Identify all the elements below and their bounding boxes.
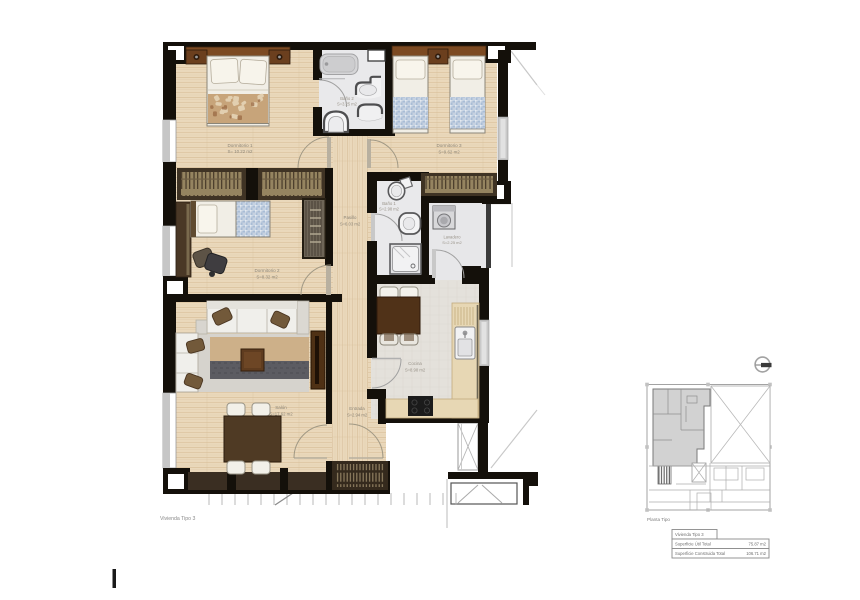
svg-text:S=8.98 m2: S=8.98 m2 [405,368,426,373]
svg-text:S=8.32 m2: S=8.32 m2 [256,275,278,280]
svg-text:S=2.25 m2: S=2.25 m2 [442,240,462,245]
svg-text:Salón: Salón [275,405,287,410]
svg-text:Cocina: Cocina [408,361,422,366]
svg-text:Lavadero: Lavadero [443,235,461,240]
svg-text:Baño 2: Baño 2 [340,96,354,101]
svg-text:S=9.62 m2: S=9.62 m2 [438,150,460,155]
svg-text:Dormitorio 2: Dormitorio 2 [254,268,279,273]
svg-text:Vivienda Tipo 3: Vivienda Tipo 3 [675,532,704,537]
svg-text:S=17.62 m2: S=17.62 m2 [269,412,293,417]
svg-text:75.87 m2: 75.87 m2 [749,542,767,547]
svg-text:S=6.03 m2: S=6.03 m2 [340,222,361,227]
svg-text:S=2.94 m2: S=2.94 m2 [347,413,368,418]
svg-text:Baño 1: Baño 1 [382,201,396,206]
svg-text:Dormitorio 3: Dormitorio 3 [436,143,461,148]
svg-text:Pasillo: Pasillo [344,215,357,220]
svg-text:Vivienda Tipo 3: Vivienda Tipo 3 [160,516,195,522]
svg-text:Superficie Construida Total: Superficie Construida Total [675,551,725,556]
svg-text:Dormitorio 1: Dormitorio 1 [227,143,252,148]
svg-text:Planta Tipo: Planta Tipo [647,517,670,522]
svg-text:Entrada: Entrada [349,406,365,411]
svg-text:S=3.25 m2: S=3.25 m2 [337,102,358,107]
svg-text:Superficie Útil Total: Superficie Útil Total [675,542,711,547]
svg-text:S= 10.22 m2: S= 10.22 m2 [227,149,253,154]
svg-text:106.71 m2: 106.71 m2 [746,551,766,556]
svg-text:S=2.98 m2: S=2.98 m2 [379,207,400,212]
